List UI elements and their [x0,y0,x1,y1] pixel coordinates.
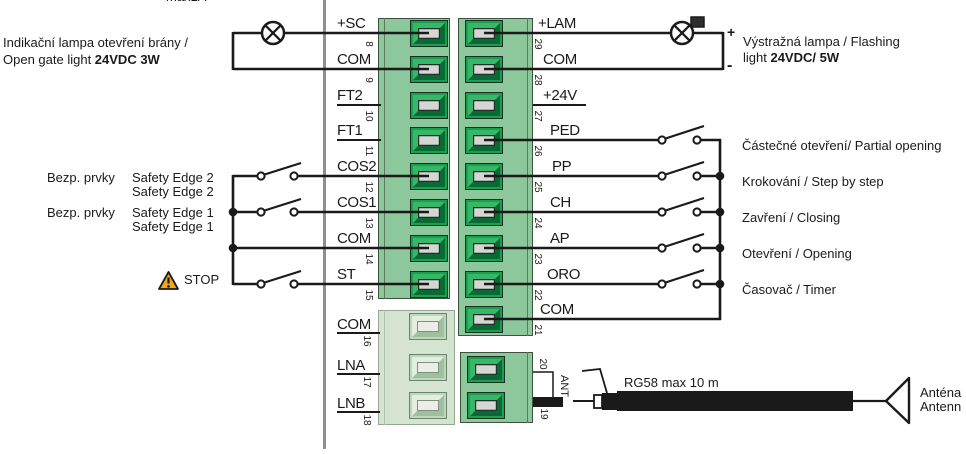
terminal [465,199,503,226]
safety-edge1-prefix: Bezp. prvky [47,205,115,220]
open-gate-label-line2: Open gate light 24VDC 3W [3,52,160,67]
terminal [410,56,448,83]
pin-label: ORO [547,267,580,283]
terminal [465,92,503,119]
pin-underline [533,104,586,106]
pin-label: ST [337,267,355,283]
safety-edge2-prefix: Bezp. prvky [47,170,115,185]
pin-number: 8 [362,35,374,53]
pin-label: +LAM [538,16,576,32]
switch-label: Částečné otevření/ Partial opening [742,138,941,153]
pin-underline [337,139,381,141]
terminal [409,392,447,419]
pin-number: 21 [531,321,543,339]
terminal [465,235,503,262]
terminal [467,356,505,383]
switch-label: Otevření / Opening [742,246,852,261]
warning-icon [159,272,178,289]
open-gate-label-line1: Indikační lampa otevření brány / [3,35,188,50]
ant-port-label: ANT [558,372,570,400]
block-edge-accent [527,352,528,423]
board-edge-line [323,0,326,449]
pin-label: LNB [337,396,365,412]
pin-number: 13 [362,214,374,232]
max-current-note: max1A [166,0,206,4]
pin-label: FT1 [337,123,362,139]
safety-edge2-line2: Safety Edge 2 [132,184,214,199]
pin-underline [337,332,380,334]
switch-label: Časovač / Timer [742,282,836,297]
pin-label: PED [550,123,580,139]
plus-sign: + [727,24,735,40]
pin-number: 25 [531,178,543,196]
pin-number: 11 [362,142,374,160]
terminal [409,354,447,381]
terminal [465,163,503,190]
pin-number: 28 [531,71,543,89]
block-edge-accent [527,18,528,336]
pin-number: 22 [531,286,543,304]
pin-label: COM [543,52,577,68]
antenna-icon [853,378,909,423]
terminal [410,163,448,190]
pin-number: 14 [362,250,374,268]
coax-cable-label: RG58 max 10 m [624,375,719,390]
pin-label: COS1 [337,195,376,211]
pin-number: 20 [536,355,548,373]
pin-number: 17 [360,373,372,391]
pin-label: COM [540,302,574,318]
flashing-lamp-icon [671,17,704,44]
pin-number: 12 [362,178,374,196]
pin-number: 26 [531,142,543,160]
safety-edge1-line1: Safety Edge 1 [132,205,214,220]
terminal [410,271,448,298]
safety-edge1-line2: Safety Edge 1 [132,219,214,234]
switch-label: Krokování / Step by step [742,174,884,189]
pin-number: 24 [531,214,543,232]
block-edge-accent [384,18,385,299]
block-edge-accent [384,310,385,425]
pin-number: 29 [531,35,543,53]
terminal [465,127,503,154]
terminal [410,127,448,154]
pin-label: LNA [337,358,365,374]
terminal [465,56,503,83]
pin-number: 15 [362,286,374,304]
minus-sign: - [727,57,732,75]
terminal [467,392,505,419]
pin-label: COS2 [337,159,376,175]
terminal [409,313,447,340]
pin-label: COM [337,317,371,333]
wiring-diagram: max1A Indikační lampa otevření brány / O… [0,0,966,454]
pin-number: 18 [360,411,372,429]
terminal [410,92,448,119]
terminal [465,20,503,47]
terminal [410,20,448,47]
terminal [465,271,503,298]
pin-number: 23 [531,250,543,268]
terminal [410,235,448,262]
pin-underline [337,411,380,413]
terminal [410,199,448,226]
pin-number: 19 [537,405,549,423]
antenna-label-line2: Antenn [920,399,961,414]
flashing-lamp-label-line1: Výstražná lampa / Flashing [743,34,900,49]
safety-switches [257,163,301,288]
flashing-lamp-label-line2: light 24VDC/ 5W [743,50,839,65]
pin-number: 10 [362,107,374,125]
pin-label: COM [337,52,371,68]
stop-label: STOP [184,272,219,287]
pin-label: +SC [337,16,365,32]
pin-number: 27 [531,107,543,125]
pin-underline [337,104,381,106]
command-switches [658,126,704,288]
antenna-label-line1: Anténa [920,385,961,400]
pin-label: AP [550,231,569,247]
pin-label: CH [550,195,571,211]
terminal [465,306,503,333]
safety-edge2-line1: Safety Edge 2 [132,170,214,185]
pin-label: PP [552,159,571,175]
pin-label: +24V [543,88,577,104]
pin-label: COM [337,231,371,247]
pin-label: FT2 [337,88,362,104]
switch-label: Zavření / Closing [742,210,840,225]
open-gate-lamp-icon [262,22,284,44]
pin-number: 16 [360,332,372,350]
pin-number: 9 [362,71,374,89]
pin-underline [337,373,380,375]
